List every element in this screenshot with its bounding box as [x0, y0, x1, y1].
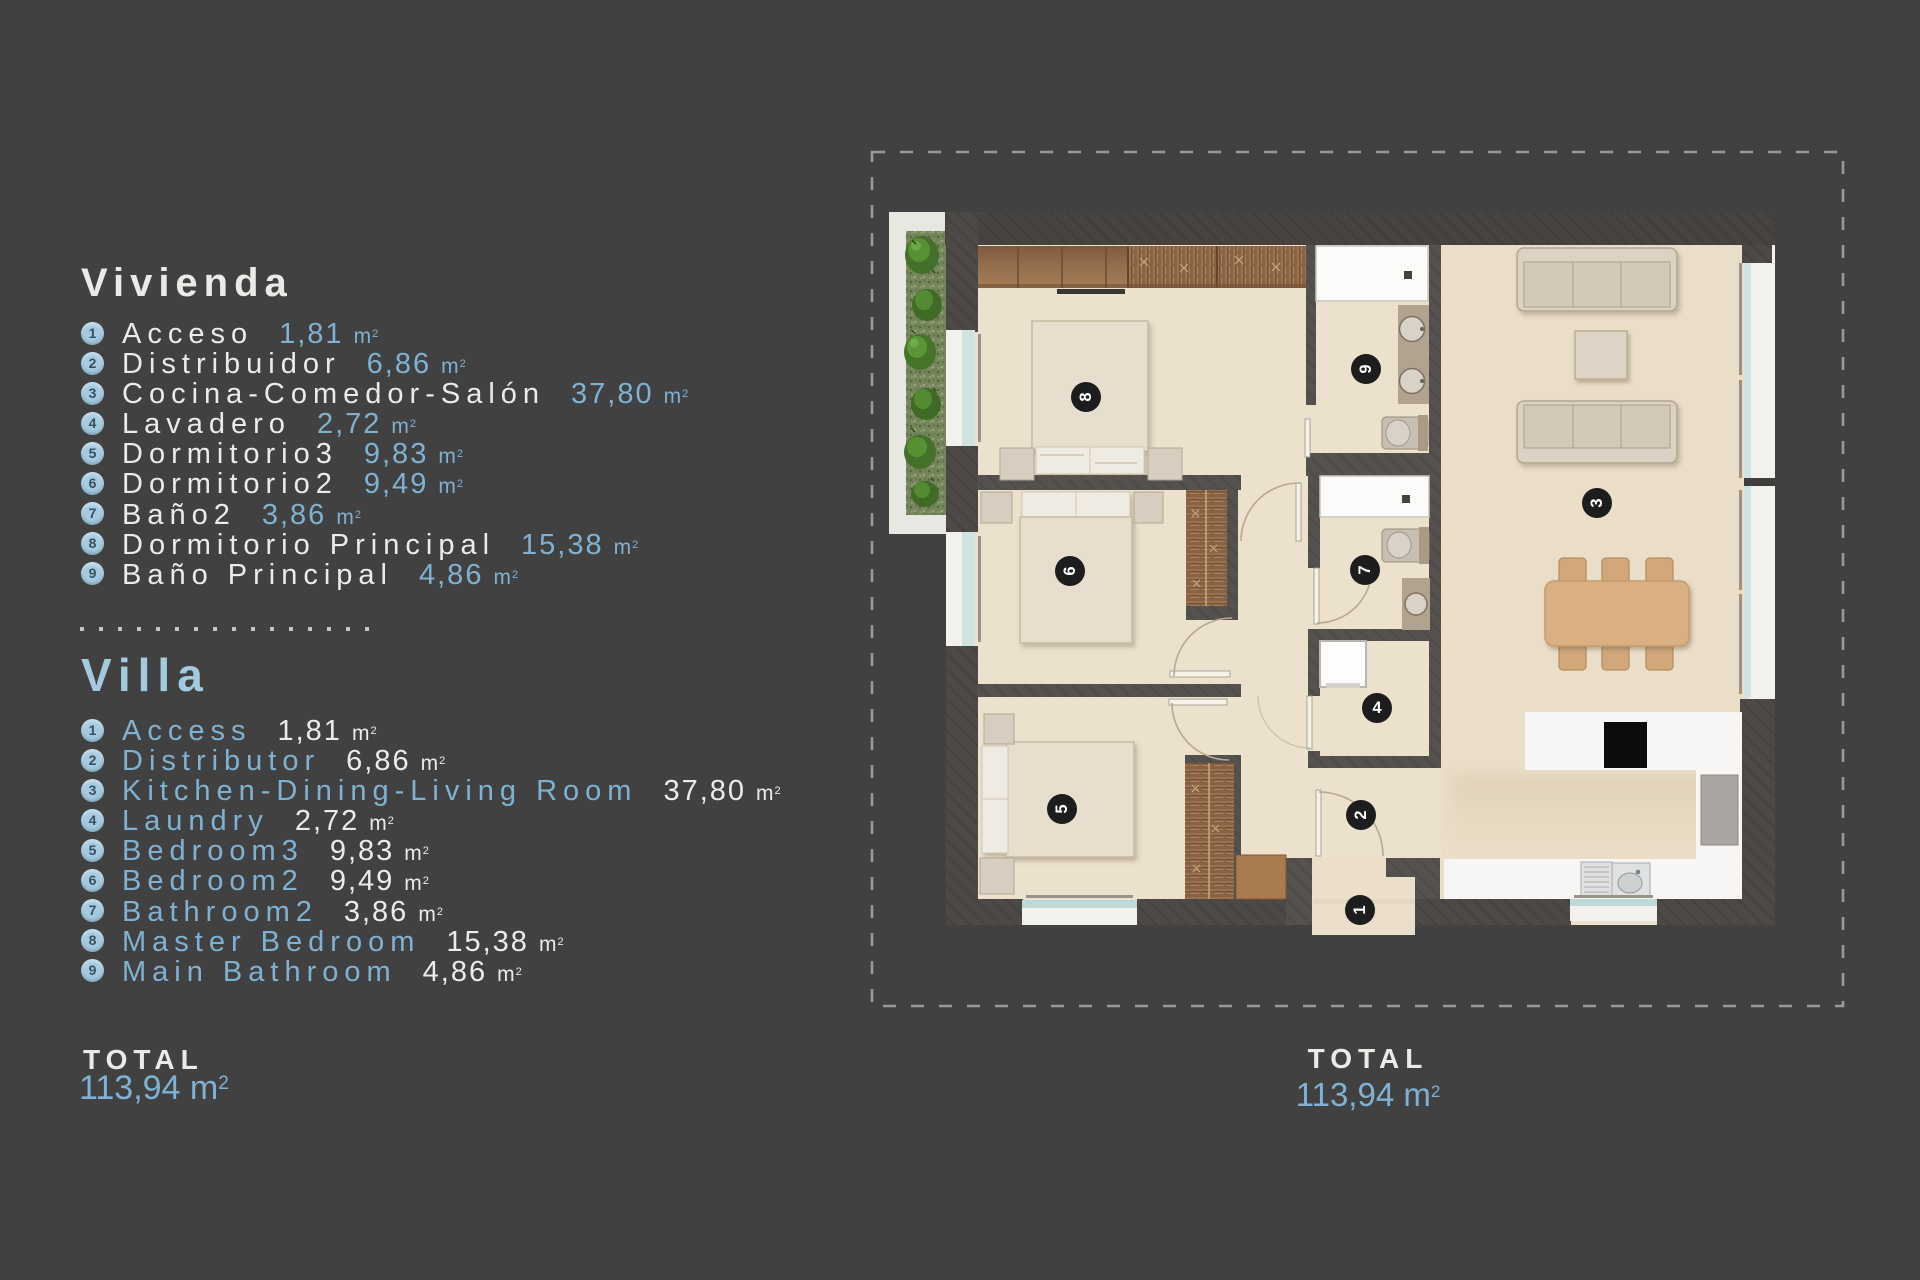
- svg-text:8: 8: [1077, 392, 1095, 401]
- svg-text:6: 6: [1061, 566, 1079, 575]
- svg-text:1: 1: [1351, 905, 1369, 914]
- svg-text:4: 4: [1372, 699, 1382, 717]
- svg-text:5: 5: [1053, 804, 1071, 813]
- svg-text:2: 2: [1352, 810, 1370, 819]
- svg-text:7: 7: [1356, 565, 1374, 574]
- svg-text:9: 9: [1357, 364, 1375, 373]
- svg-text:3: 3: [1588, 498, 1606, 507]
